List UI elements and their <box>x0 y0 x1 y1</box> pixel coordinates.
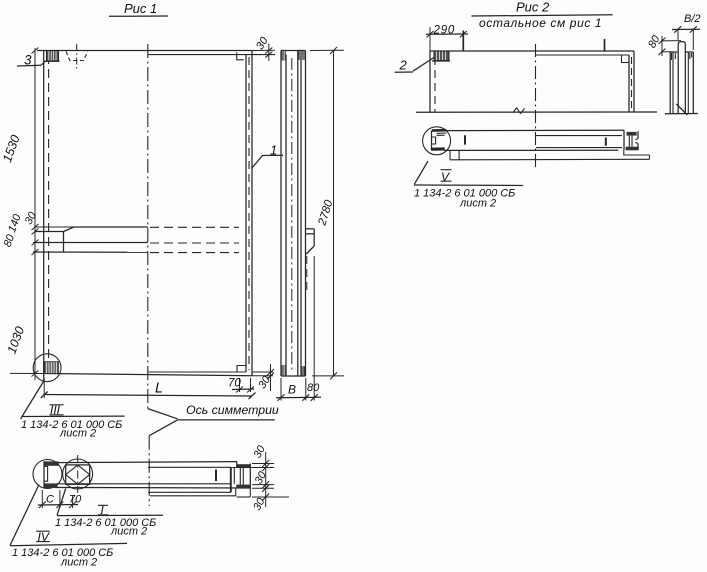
svg-text:С: С <box>46 494 54 506</box>
svg-text:лист 2: лист 2 <box>110 526 147 538</box>
svg-text:70: 70 <box>69 494 82 506</box>
svg-text:2780: 2780 <box>316 198 335 228</box>
svg-text:В/2: В/2 <box>684 13 701 25</box>
svg-text:L: L <box>155 381 163 397</box>
svg-text:В: В <box>288 383 296 397</box>
svg-text:80: 80 <box>307 382 320 394</box>
svg-text:1530: 1530 <box>0 133 23 164</box>
svg-text:Рис 1: Рис 1 <box>124 1 157 16</box>
svg-text:лист 2: лист 2 <box>459 198 496 210</box>
svg-text:Ось симметрии: Ось симметрии <box>186 403 279 417</box>
svg-text:80: 80 <box>2 232 18 248</box>
svg-text:остальное см рис 1: остальное см рис 1 <box>479 16 602 30</box>
svg-text:2: 2 <box>399 58 408 73</box>
svg-text:70: 70 <box>228 378 241 390</box>
svg-text:290: 290 <box>433 25 456 37</box>
svg-text:Рис 2: Рис 2 <box>516 0 550 15</box>
svg-text:30: 30 <box>23 209 40 226</box>
svg-text:лист 2: лист 2 <box>60 557 97 569</box>
svg-text:V: V <box>441 170 450 184</box>
svg-text:140: 140 <box>6 212 24 234</box>
svg-text:80: 80 <box>646 33 663 50</box>
svg-text:1030: 1030 <box>5 325 28 356</box>
svg-text:лист 2: лист 2 <box>59 428 96 440</box>
